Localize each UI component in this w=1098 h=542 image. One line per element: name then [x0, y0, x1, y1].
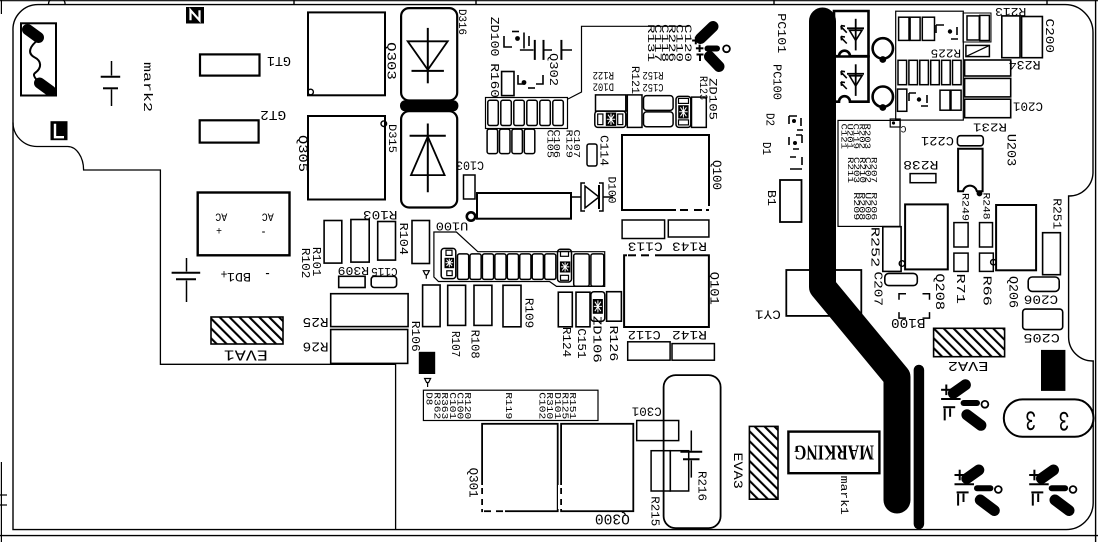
svg-text:EVA2: EVA2	[948, 357, 989, 373]
svg-text:R207: R207	[869, 157, 879, 183]
svg-text:C112: C112	[628, 327, 661, 342]
svg-text:GT1: GT1	[267, 52, 291, 68]
svg-text:R231: R231	[973, 120, 1007, 134]
svg-text:AC: AC	[215, 210, 227, 222]
svg-text:3: 3	[1059, 403, 1070, 434]
svg-text:C107: C107	[571, 130, 581, 159]
svg-text:D316: D316	[455, 9, 467, 35]
svg-text:R248: R248	[979, 193, 990, 220]
svg-text:R131: R131	[644, 24, 655, 62]
svg-text:MARKING: MARKING	[794, 440, 874, 464]
svg-text:C: C	[901, 122, 907, 133]
svg-text:D315: D315	[385, 124, 397, 153]
svg-text:R122: R122	[593, 68, 614, 80]
svg-text:R25: R25	[303, 313, 329, 329]
svg-text:R251: R251	[1050, 198, 1064, 229]
svg-text:C114: C114	[597, 135, 611, 166]
svg-text:Q301: Q301	[465, 468, 480, 498]
svg-text:C205: C205	[1023, 330, 1060, 345]
svg-text:R104: R104	[396, 222, 410, 255]
svg-text:R109: R109	[522, 298, 536, 328]
svg-text:R66: R66	[979, 275, 993, 306]
svg-text:-: -	[264, 265, 271, 282]
svg-text:R206: R206	[869, 192, 879, 220]
svg-text:R107: R107	[448, 331, 462, 357]
svg-text:R142: R142	[672, 327, 707, 342]
svg-text:Q208: Q208	[932, 273, 947, 310]
svg-text:R108: R108	[468, 330, 482, 359]
svg-text:R160: R160	[487, 63, 501, 98]
svg-text:R120: R120	[462, 392, 473, 419]
svg-text:ZD106: ZD106	[589, 316, 603, 363]
svg-text:BD1: BD1	[227, 269, 251, 284]
svg-text:B1: B1	[764, 190, 778, 206]
svg-text:U100: U100	[436, 218, 469, 232]
svg-text:Q303: Q303	[384, 42, 399, 80]
svg-text:C301: C301	[632, 404, 662, 419]
svg-text:GT2: GT2	[260, 106, 286, 122]
svg-text:+: +	[220, 266, 227, 281]
svg-text:EVA1: EVA1	[224, 346, 268, 363]
svg-text:R119: R119	[503, 392, 514, 419]
svg-text:C200: C200	[1042, 18, 1056, 53]
svg-text:R249: R249	[959, 193, 970, 221]
svg-text:C151: C151	[574, 328, 588, 358]
svg-text:R151: R151	[567, 392, 578, 419]
svg-text:R238: R238	[903, 157, 938, 172]
svg-text:ZD105: ZD105	[706, 78, 718, 120]
svg-text:C115: C115	[371, 264, 397, 278]
svg-text:ZD100: ZD100	[487, 17, 501, 57]
svg-text:R126: R126	[606, 325, 620, 361]
svg-text:B100: B100	[891, 314, 926, 330]
svg-text:R234: R234	[1008, 57, 1040, 72]
svg-text:R152: R152	[643, 68, 664, 80]
svg-text:R225: R225	[931, 46, 961, 60]
svg-text:EVA3: EVA3	[730, 452, 745, 488]
svg-text:R71: R71	[953, 273, 967, 304]
svg-text:AC: AC	[261, 210, 273, 222]
svg-text:C221: C221	[921, 133, 954, 148]
svg-text:R102: R102	[298, 248, 312, 278]
svg-text:Q206: Q206	[1005, 276, 1020, 308]
svg-text:+: +	[216, 223, 222, 235]
svg-text:U203: U203	[1003, 134, 1018, 166]
svg-text:D2: D2	[763, 113, 777, 126]
svg-text:D100: D100	[605, 177, 617, 204]
svg-text:R124: R124	[559, 327, 573, 357]
svg-text:C201: C201	[1013, 99, 1043, 114]
svg-text:R252: R252	[868, 227, 882, 268]
svg-text:C106: C106	[551, 130, 561, 159]
svg-text:Q305: Q305	[295, 135, 310, 172]
svg-text:C113: C113	[628, 238, 663, 253]
svg-text:C207: C207	[871, 271, 885, 306]
svg-text:C206: C206	[1024, 292, 1058, 307]
svg-text:Q100: Q100	[709, 160, 724, 190]
svg-text:Q300: Q300	[595, 509, 630, 526]
svg-text:-: -	[261, 225, 267, 240]
svg-text:D1: D1	[759, 142, 773, 155]
svg-text:mark1: mark1	[837, 476, 849, 515]
svg-text:R106: R106	[408, 321, 422, 352]
svg-text:CY1: CY1	[755, 307, 781, 322]
svg-text:D102: D102	[593, 80, 614, 92]
svg-text:R26: R26	[303, 338, 329, 354]
svg-text:PC100: PC100	[770, 64, 784, 100]
svg-text:R103: R103	[363, 207, 398, 222]
svg-text:Q101: Q101	[707, 272, 722, 305]
svg-text:mark2: mark2	[140, 62, 154, 112]
svg-text:PC101: PC101	[774, 13, 788, 53]
svg-text:Q302: Q302	[546, 53, 560, 86]
svg-text:C152: C152	[643, 80, 664, 92]
svg-text:R215: R215	[647, 496, 661, 526]
svg-text:C103: C103	[456, 158, 484, 173]
svg-text:R143: R143	[672, 238, 707, 253]
svg-text:R203: R203	[862, 123, 872, 149]
svg-text:R121: R121	[628, 66, 640, 94]
svg-text:3: 3	[1025, 403, 1036, 434]
svg-text:R309: R309	[338, 263, 370, 277]
svg-text:R216: R216	[694, 471, 708, 501]
